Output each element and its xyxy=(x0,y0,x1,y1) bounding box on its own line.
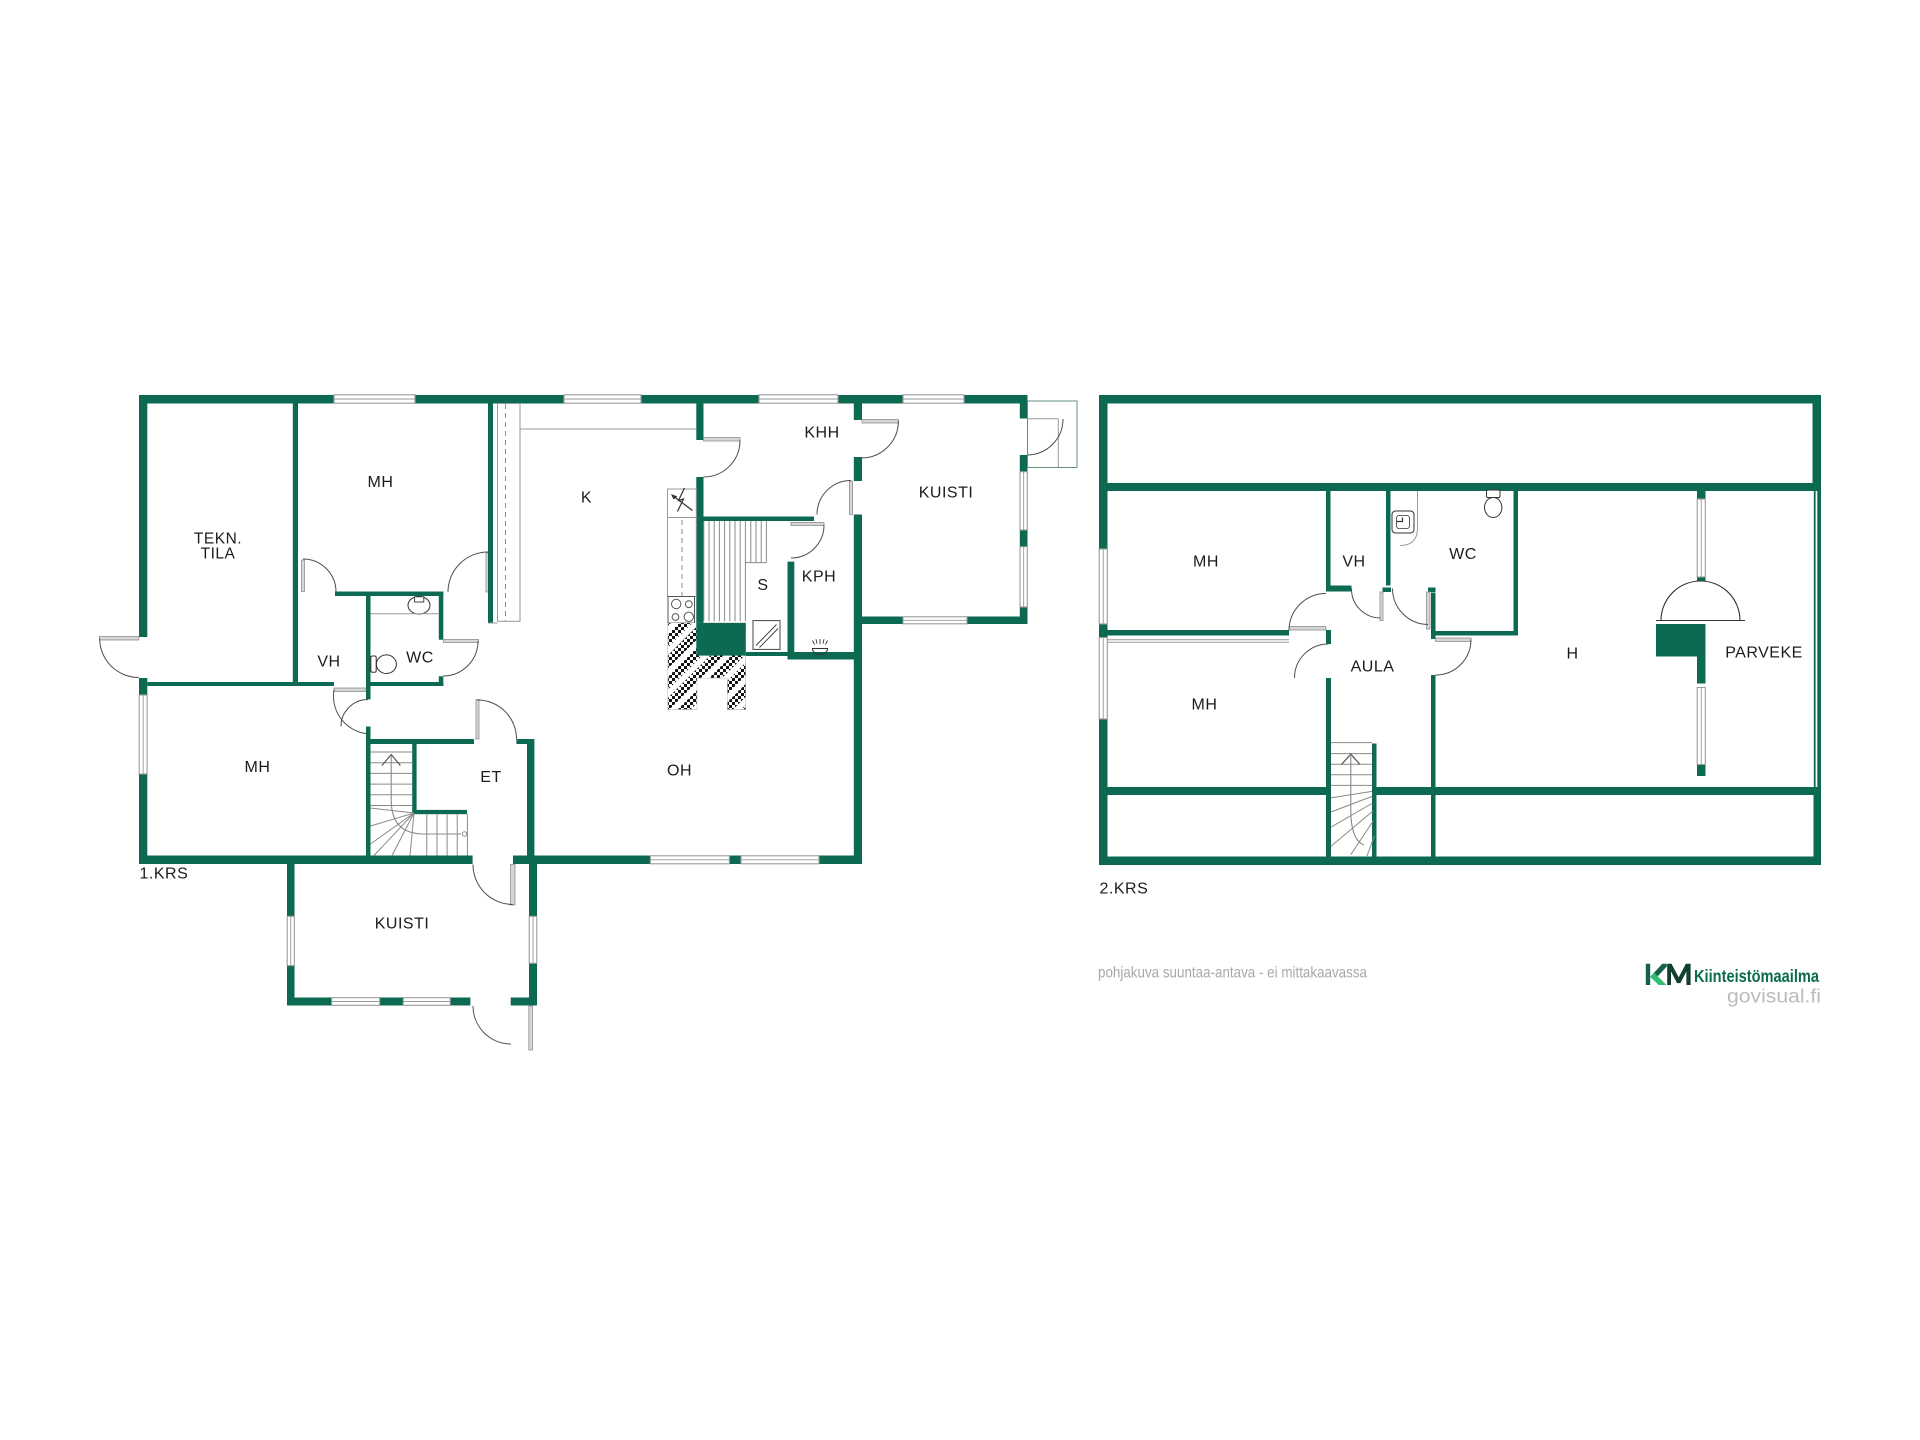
svg-text:MH: MH xyxy=(245,759,271,776)
svg-text:H: H xyxy=(1566,646,1578,663)
svg-text:KUISTI: KUISTI xyxy=(919,485,974,502)
svg-text:Kiinteistömaailma: Kiinteistömaailma xyxy=(1694,966,1819,986)
svg-text:MH: MH xyxy=(368,474,394,491)
svg-text:WC: WC xyxy=(406,650,434,667)
svg-text:TILA: TILA xyxy=(201,546,236,563)
svg-text:ET: ET xyxy=(480,769,501,786)
svg-text:2.KRS: 2.KRS xyxy=(1100,881,1149,898)
svg-text:KPH: KPH xyxy=(802,569,836,586)
svg-text:S: S xyxy=(757,577,768,594)
svg-text:MH: MH xyxy=(1193,554,1219,571)
svg-text:KHH: KHH xyxy=(804,425,839,442)
svg-text:KUISTI: KUISTI xyxy=(375,916,430,933)
svg-text:1.KRS: 1.KRS xyxy=(140,866,189,883)
svg-text:WC: WC xyxy=(1449,546,1477,563)
svg-text:govisual.fi: govisual.fi xyxy=(1727,987,1821,1008)
svg-text:MH: MH xyxy=(1192,697,1218,714)
svg-text:K: K xyxy=(581,490,592,507)
svg-text:OH: OH xyxy=(667,763,692,780)
svg-text:VH: VH xyxy=(1342,554,1365,571)
svg-text:AULA: AULA xyxy=(1351,659,1395,676)
svg-text:PARVEKE: PARVEKE xyxy=(1725,645,1803,662)
svg-text:VH: VH xyxy=(317,654,340,671)
svg-text:pohjakuva suuntaa-antava - ei: pohjakuva suuntaa-antava - ei mittakaava… xyxy=(1098,965,1367,982)
